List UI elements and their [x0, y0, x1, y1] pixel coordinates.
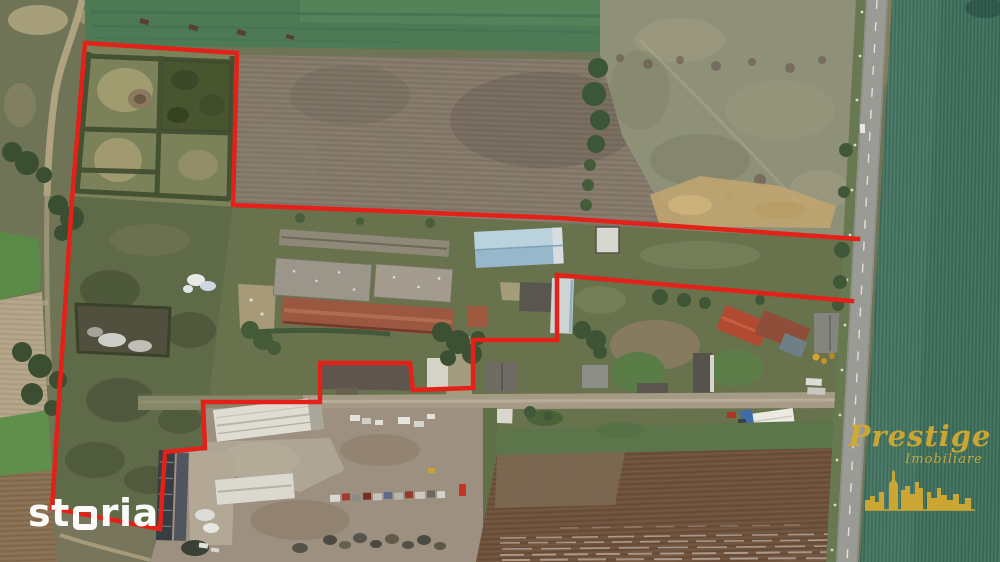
prestige-skyline-icon	[862, 470, 978, 512]
red-shed	[467, 306, 488, 327]
tall-dark-building	[693, 353, 712, 394]
aerial-photo: stria Prestige Imobiliare	[0, 0, 1000, 562]
red-car	[459, 484, 466, 496]
blue-warehouse	[474, 227, 564, 268]
prestige-title: Prestige	[828, 422, 1000, 451]
prestige-subtitle: Imobiliare	[876, 452, 1000, 467]
garden-plots	[70, 43, 237, 207]
storia-watermark: stria	[28, 494, 159, 532]
storia-text-left: st	[28, 494, 70, 532]
storia-square-o-icon	[73, 506, 97, 530]
bottom-field	[476, 410, 850, 562]
top-grass-strip	[85, 0, 615, 52]
corral-pen	[76, 304, 170, 356]
storia-text-right: ria	[100, 494, 159, 532]
prestige-watermark: Prestige Imobiliare	[828, 422, 1000, 516]
